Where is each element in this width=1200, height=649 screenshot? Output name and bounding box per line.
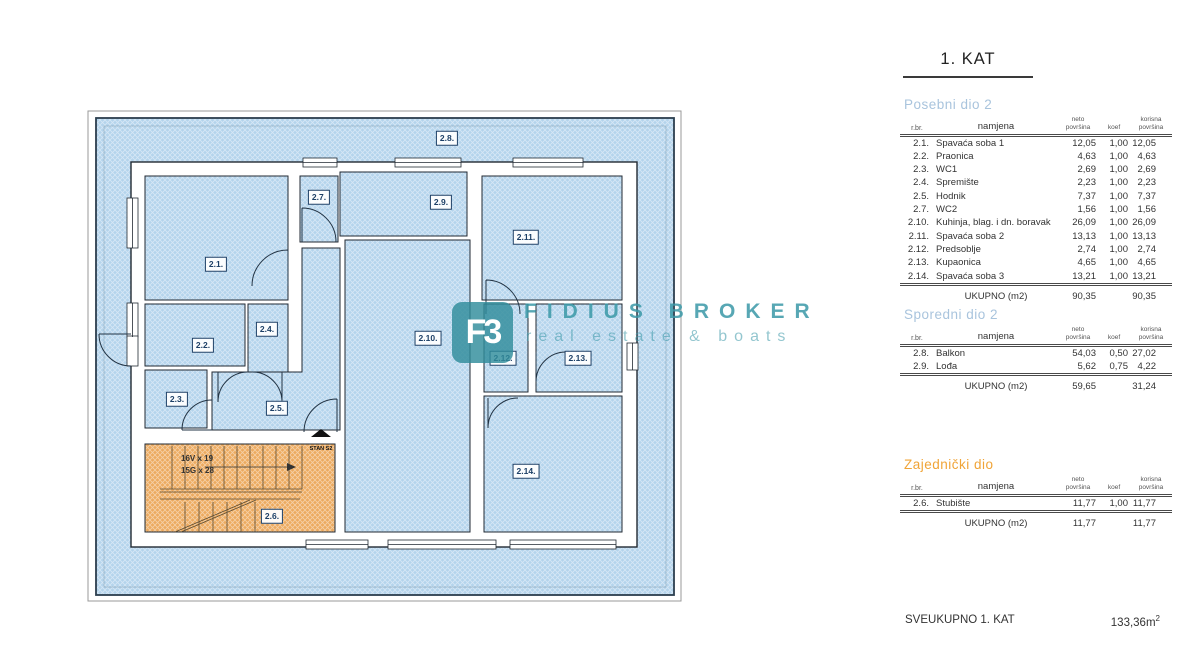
column-header: neto površina [1058,116,1098,135]
total-cell [900,511,934,530]
section-posebni-dio: Posebni dio 2 r.br.namjenaneto površinak… [900,97,1172,303]
column-header: namjena [934,326,1058,345]
table-cell: Balkon [934,345,1058,360]
total-cell [1098,375,1130,394]
table-row: 2.12.Predsoblje2,741,002,74 [900,243,1172,256]
grand-total-value: 133,36m2 [1111,614,1160,629]
total-row: UKUPNO (m2)90,3590,35 [900,284,1172,303]
column-header: korisna površina [1130,326,1172,345]
room-label-2-8: 2.8. [436,131,458,146]
room-label-2-6: 2.6. [261,509,283,524]
table-cell: 54,03 [1058,345,1098,360]
table-row: 2.8.Balkon54,030,5027,02 [900,345,1172,360]
stair-annotation-2: 15G x 28 [181,466,214,475]
table-cell: 13,21 [1130,270,1172,285]
table-row: 2.6.Stubište11,771,0011,77 [900,495,1172,511]
section-zajednicki-dio: Zajednički dio r.br.namjenaneto površina… [900,457,1172,530]
table-cell: 7,37 [1130,190,1172,203]
total-cell: 11,77 [1130,511,1172,530]
section-heading: Zajednički dio [904,457,1172,472]
room-2-11 [482,176,622,300]
grand-total-label: SVEUKUPNO 1. KAT [905,614,1015,626]
table-cell: 1,00 [1098,216,1130,229]
sporedni-dio-table: r.br.namjenaneto površinakoefkorisna pov… [900,326,1172,393]
table-cell: 5,62 [1058,360,1098,375]
total-cell: UKUPNO (m2) [934,511,1058,530]
table-cell: Spremište [934,176,1058,189]
table-cell: 7,37 [1058,190,1098,203]
table-cell: 27,02 [1130,345,1172,360]
column-header: neto površina [1058,476,1098,495]
zajednicki-dio-table: r.br.namjenaneto površinakoefkorisna pov… [900,476,1172,530]
room-label-2-2: 2.2. [192,338,214,353]
table-cell: Praonica [934,150,1058,163]
table-cell: Kupaonica [934,256,1058,269]
total-cell: UKUPNO (m2) [934,284,1058,303]
table-cell: 11,77 [1130,495,1172,511]
table-cell: 1,00 [1098,256,1130,269]
room-label-2-7: 2.7. [308,190,330,205]
table-cell: 2.7. [900,203,934,216]
room-label-2-10: 2.10. [415,331,442,346]
table-cell: WC1 [934,163,1058,176]
table-row: 2.9.Lođa5,620,754,22 [900,360,1172,375]
table-cell: 2.6. [900,495,934,511]
table-row: 2.4.Spremište2,231,002,23 [900,176,1172,189]
table-cell: 2.3. [900,163,934,176]
watermark-tagline: real estate & boats [526,328,792,346]
floor-plan: 16V x 19 15G x 28 STAN S2 [0,0,760,649]
table-cell: 12,05 [1058,135,1098,150]
table-cell: 13,13 [1058,230,1098,243]
total-cell: UKUPNO (m2) [934,375,1058,394]
fidius-broker-logo-icon: F3 [452,302,513,363]
room-2-7 [300,176,338,242]
table-cell: Spavaća soba 3 [934,270,1058,285]
table-cell: 1,00 [1098,203,1130,216]
table-cell: 1,56 [1130,203,1172,216]
room-2-14 [484,396,622,532]
table-cell: 2,74 [1058,243,1098,256]
table-cell: 2.10. [900,216,934,229]
table-cell: Hodnik [934,190,1058,203]
area-table: r.br.namjenaneto površinakoefkorisna pov… [900,476,1172,530]
table-cell: 2.11. [900,230,934,243]
table-cell: 2,23 [1058,176,1098,189]
table-cell: Predsoblje [934,243,1058,256]
table-cell: 1,00 [1098,176,1130,189]
area-table: r.br.namjenaneto površinakoefkorisna pov… [900,116,1172,303]
column-header: koef [1098,326,1130,345]
room-label-2-9: 2.9. [430,195,452,210]
table-cell: 2.13. [900,256,934,269]
section-heading: Posebni dio 2 [904,97,1172,112]
table-cell: 2.12. [900,243,934,256]
room-label-2-13: 2.13. [565,351,592,366]
room-2-2 [145,304,245,366]
table-cell: 4,65 [1130,256,1172,269]
column-header: r.br. [900,116,934,135]
table-row: 2.11.Spavaća soba 213,131,0013,13 [900,230,1172,243]
table-cell: Stubište [934,495,1058,511]
watermark-brand-name: FIDIUS BROKER [524,300,820,324]
column-header: neto površina [1058,326,1098,345]
total-cell: 59,65 [1058,375,1098,394]
table-row: 2.2.Praonica4,631,004,63 [900,150,1172,163]
section-heading: Sporedni dio 2 [904,307,1172,322]
table-cell: 12,05 [1130,135,1172,150]
table-cell: WC2 [934,203,1058,216]
table-cell: 1,00 [1098,190,1130,203]
table-cell: 1,56 [1058,203,1098,216]
room-2-10 [345,240,470,532]
total-cell [1098,511,1130,530]
table-cell: 1,00 [1098,230,1130,243]
rooms [145,172,622,532]
area-summary-panel: 1. KAT Posebni dio 2 r.br.namjenaneto po… [900,0,1172,649]
table-cell: 4,65 [1058,256,1098,269]
section-sporedni-dio: Sporedni dio 2 r.br.namjenaneto površina… [900,307,1172,393]
room-label-2-14: 2.14. [513,464,540,479]
table-cell: 1,00 [1098,163,1130,176]
table-cell: 2,23 [1130,176,1172,189]
table-cell: 13,21 [1058,270,1098,285]
total-row: UKUPNO (m2)11,7711,77 [900,511,1172,530]
table-cell: 2.1. [900,135,934,150]
table-cell: 26,09 [1130,216,1172,229]
table-row: 2.14.Spavaća soba 313,211,0013,21 [900,270,1172,285]
room-label-2-1: 2.1. [205,257,227,272]
room-label-2-4: 2.4. [256,322,278,337]
total-cell: 11,77 [1058,511,1098,530]
table-cell: 1,00 [1098,270,1130,285]
room-label-2-5: 2.5. [266,401,288,416]
column-header: korisna površina [1130,116,1172,135]
column-header: r.br. [900,476,934,495]
table-row: 2.5.Hodnik7,371,007,37 [900,190,1172,203]
table-row: 2.10.Kuhinja, blag. i dn. boravak26,091,… [900,216,1172,229]
total-cell [900,284,934,303]
table-cell: Lođa [934,360,1058,375]
total-cell: 90,35 [1130,284,1172,303]
column-header: namjena [934,476,1058,495]
column-header: koef [1098,116,1130,135]
table-cell: 1,00 [1098,243,1130,256]
table-cell: 26,09 [1058,216,1098,229]
table-cell: 2,74 [1130,243,1172,256]
table-row: 2.3.WC12,691,002,69 [900,163,1172,176]
table-cell: 2.14. [900,270,934,285]
table-cell: Spavaća soba 2 [934,230,1058,243]
area-table: r.br.namjenaneto površinakoefkorisna pov… [900,326,1172,393]
table-cell: 4,63 [1058,150,1098,163]
unit-marker-label: STAN S2 [310,446,333,452]
table-cell: 13,13 [1130,230,1172,243]
total-cell: 31,24 [1130,375,1172,394]
room-label-2-3: 2.3. [166,392,188,407]
column-header: koef [1098,476,1130,495]
table-row: 2.1.Spavaća soba 112,051,0012,05 [900,135,1172,150]
table-cell: 0,75 [1098,360,1130,375]
table-cell: 0,50 [1098,345,1130,360]
total-cell [900,375,934,394]
total-row: UKUPNO (m2)59,6531,24 [900,375,1172,394]
stair-annotation-1: 16V x 19 [181,454,214,463]
table-cell: 2,69 [1058,163,1098,176]
table-cell: 2.2. [900,150,934,163]
table-cell: 11,77 [1058,495,1098,511]
table-row: 2.7.WC21,561,001,56 [900,203,1172,216]
room-2-1 [145,176,288,300]
table-cell: 4,63 [1130,150,1172,163]
room-2-6-staircase [145,444,335,532]
table-cell: 2.9. [900,360,934,375]
table-cell: Spavaća soba 1 [934,135,1058,150]
total-cell [1098,284,1130,303]
total-cell: 90,35 [1058,284,1098,303]
room-label-2-11: 2.11. [513,230,539,245]
table-cell: 2.8. [900,345,934,360]
table-cell: 4,22 [1130,360,1172,375]
column-header: namjena [934,116,1058,135]
table-cell: 1,00 [1098,495,1130,511]
column-header: korisna površina [1130,476,1172,495]
table-cell: 2,69 [1130,163,1172,176]
floor-title: 1. KAT [903,50,1033,78]
table-cell: Kuhinja, blag. i dn. boravak [934,216,1058,229]
table-row: 2.13.Kupaonica4,651,004,65 [900,256,1172,269]
table-cell: 2.5. [900,190,934,203]
posebni-dio-table: r.br.namjenaneto površinakoefkorisna pov… [900,116,1172,303]
table-cell: 1,00 [1098,150,1130,163]
grand-total-row: SVEUKUPNO 1. KAT 133,36m2 [905,614,1160,629]
table-cell: 2.4. [900,176,934,189]
table-cell: 1,00 [1098,135,1130,150]
column-header: r.br. [900,326,934,345]
